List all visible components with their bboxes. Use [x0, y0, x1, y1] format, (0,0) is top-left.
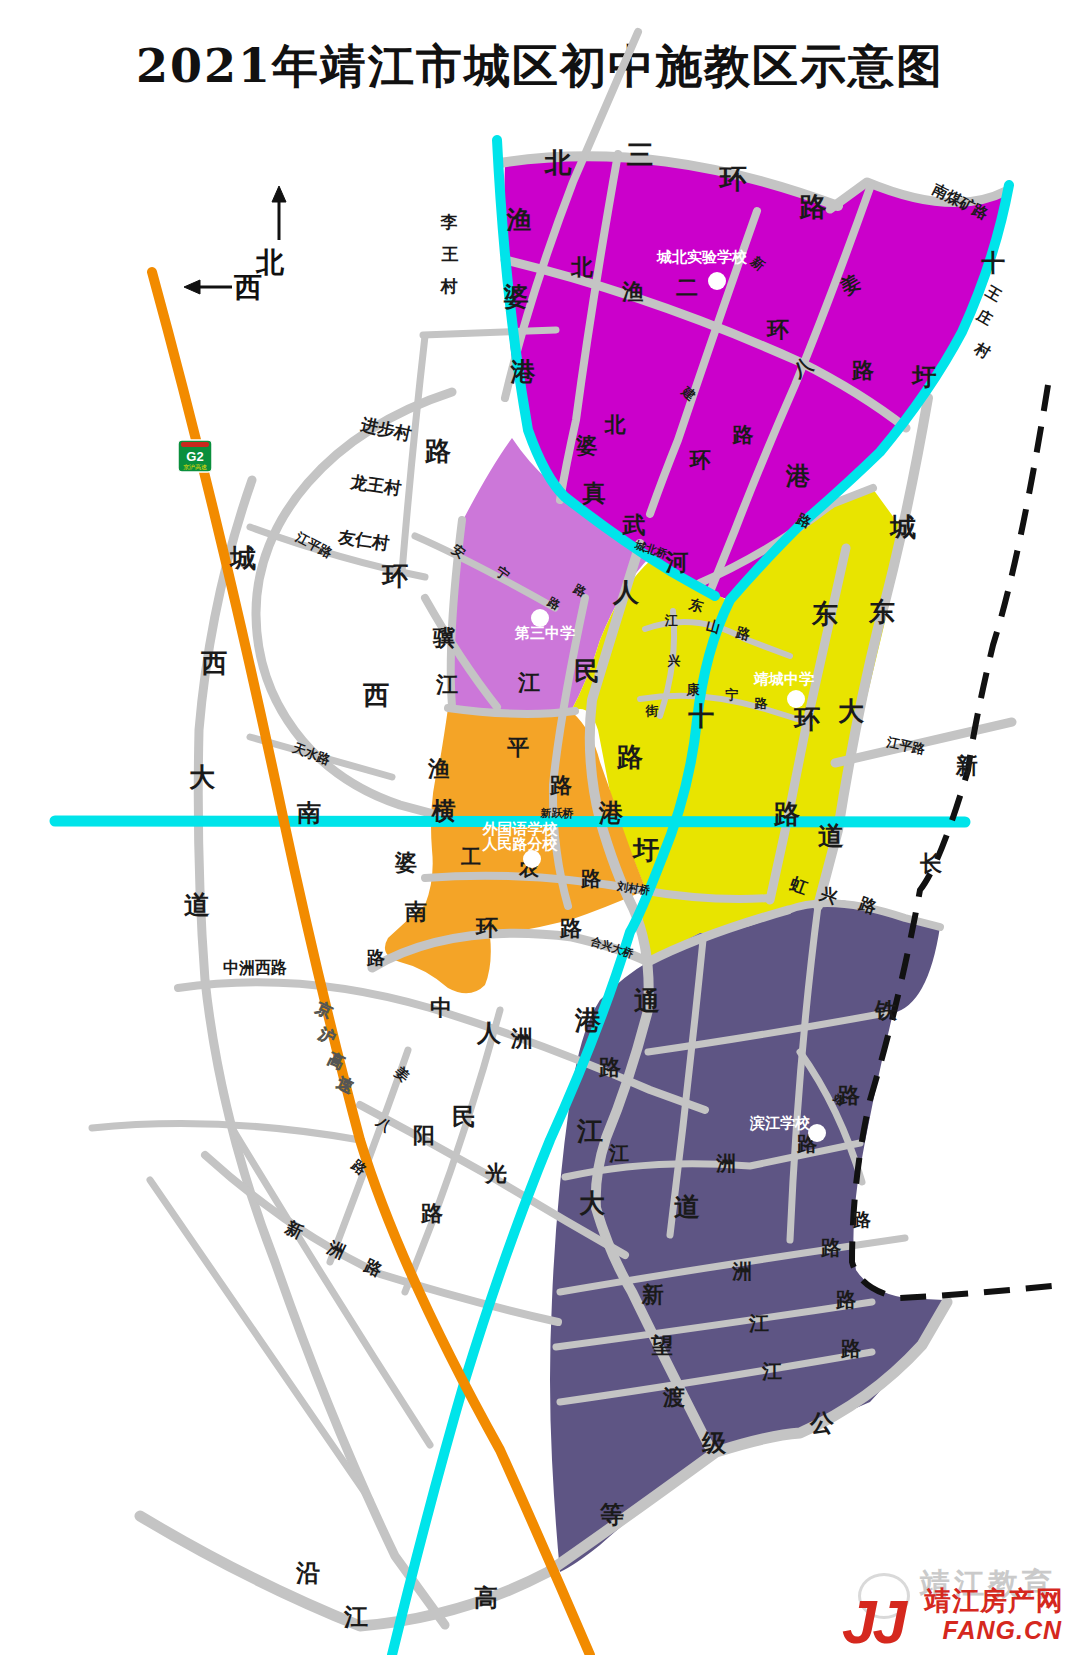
map-label: 光: [484, 1161, 507, 1186]
map-label: 真: [582, 480, 606, 506]
map-label: 大: [838, 696, 865, 726]
map-label: 路: [732, 423, 754, 446]
map-label: 新: [641, 1282, 664, 1307]
map-label: 城: [229, 543, 256, 573]
compass: 北 西: [184, 186, 286, 303]
map-label: 洲: [731, 1260, 752, 1282]
map-label: 铁: [874, 998, 898, 1023]
north-arrow-head: [272, 186, 286, 202]
map-label: 王: [441, 245, 459, 264]
map-label: 横: [431, 797, 456, 824]
map-label: 环: [766, 317, 789, 342]
map-label: 圩: [911, 363, 937, 390]
map-label: 康: [686, 682, 701, 697]
map-label: 友仁村: [336, 527, 390, 553]
map-label: 大: [189, 762, 216, 792]
map-label: 西: [363, 680, 389, 710]
map-label: 婆: [576, 434, 598, 457]
map-label: 路: [754, 696, 769, 711]
map-label: 南: [296, 799, 321, 826]
map-label: 环: [475, 915, 498, 940]
district-map: 北 西 G2 京沪高速 北三环路南煤矿路李王村渔婆港十圩港王庄村新建北二环路姜八…: [0, 0, 1080, 1655]
map-label: 渡: [662, 1385, 685, 1410]
map-label: 渔: [621, 279, 644, 304]
map-label: 江: [748, 1312, 769, 1334]
map-label: 民: [452, 1103, 476, 1130]
map-label: 十: [688, 701, 714, 731]
map-label: 环: [793, 704, 820, 734]
school-marker-dot: [708, 272, 726, 290]
map-label: 路: [616, 742, 643, 772]
map-label: 东: [811, 599, 838, 629]
map-label: 骥: [432, 625, 455, 650]
map-label: 婆: [394, 850, 417, 875]
map-label: 龙王村: [348, 472, 402, 498]
map-label: 路: [835, 1289, 857, 1311]
school-name-label: 城北实验学校: [656, 248, 748, 265]
map-label: 宁: [725, 687, 739, 702]
map-label: 等: [599, 1501, 624, 1528]
map-label: 渔: [506, 205, 532, 233]
school-name-label: 靖城中学: [753, 670, 814, 687]
map-label: 道: [818, 821, 844, 851]
map-label: 路: [840, 1338, 862, 1360]
g2-badge-code: G2: [186, 449, 203, 464]
map-label: 江: [608, 1142, 629, 1164]
map-label: 武: [622, 512, 646, 538]
map-label: 北: [604, 413, 627, 436]
map-label: 李: [440, 213, 458, 232]
west-label: 西: [233, 272, 262, 303]
map-label: 南: [404, 899, 427, 924]
map-label: 港: [574, 1005, 602, 1035]
school-name-label: 滨江学校: [749, 1114, 811, 1132]
g2-highway-badge: G2 京沪高速: [178, 440, 212, 472]
map-label: 十: [981, 249, 1005, 276]
map-label: 港: [510, 357, 536, 385]
map-label: 路: [580, 868, 602, 890]
map-label: 洲: [715, 1152, 736, 1174]
map-label: 级: [701, 1429, 727, 1456]
school-marker-dot: [523, 850, 541, 868]
map-label: 二: [676, 275, 698, 300]
map-label: 江: [665, 613, 679, 628]
map-label: 天水路: [290, 740, 334, 768]
map-label: 洲: [510, 1026, 533, 1051]
school-name-label: 第三中学: [514, 624, 575, 641]
map-label: 江: [761, 1360, 782, 1382]
map-label: 渔: [427, 756, 450, 781]
map-label: 人: [476, 1019, 502, 1046]
school-marker-dot: [808, 1124, 826, 1142]
map-label: 路: [366, 948, 385, 968]
map-label: 长: [919, 851, 943, 876]
map-label: 路: [424, 436, 451, 466]
map-label: 江: [517, 670, 540, 695]
map-label: 进步村: [358, 415, 413, 444]
map-label: 路: [420, 1201, 443, 1226]
map-label: 兴: [667, 653, 681, 668]
map-stage: 2021年靖江市城区初中施教区示意图: [0, 0, 1080, 1655]
map-label: 环: [719, 164, 747, 194]
map-label: 东: [868, 597, 895, 627]
map-label: 公: [809, 1409, 835, 1436]
map-label: 路: [598, 1055, 621, 1080]
map-label: 环: [381, 561, 408, 591]
map-label: 民: [574, 656, 600, 686]
map-label: 村: [971, 339, 993, 362]
map-label: 道: [674, 1192, 700, 1222]
map-label: 港: [598, 799, 624, 826]
map-label: 三: [627, 140, 654, 170]
map-label: 望: [650, 1333, 673, 1358]
map-label: 大: [579, 1188, 606, 1218]
map-label: 街: [645, 703, 659, 718]
map-label: 路: [549, 773, 572, 798]
map-label: 江: [435, 672, 458, 697]
map-label: 城: [889, 512, 916, 542]
map-label: 河: [665, 549, 689, 575]
g2-badge-name: 京沪高速: [183, 463, 207, 470]
map-label: 工: [460, 846, 481, 868]
map-label: 圩: [631, 835, 659, 865]
map-label: 路: [851, 358, 874, 383]
map-label: 中: [430, 995, 452, 1020]
jj-logo: JJ: [842, 1591, 903, 1653]
map-label: 中洲西路: [223, 958, 287, 976]
map-label: 道: [184, 890, 210, 920]
map-label: 江平路: [293, 529, 335, 561]
map-label: 阳: [413, 1123, 435, 1148]
west-arrow-head: [184, 280, 200, 294]
school-name-label-line2: 人民路分校: [482, 835, 559, 852]
map-label: 新: [955, 753, 978, 778]
map-label: 通: [633, 986, 660, 1016]
map-label: 村: [440, 277, 458, 296]
map-label: 速: [334, 1074, 357, 1097]
map-label: 新跃桥: [540, 807, 575, 819]
map-label: 高: [474, 1584, 498, 1611]
map-label: 婆: [503, 282, 529, 310]
watermark-site-url: FANG.CN: [943, 1616, 1063, 1645]
map-label: 江: [576, 1116, 603, 1146]
school-marker-dot: [787, 690, 805, 708]
watermark: 靖江教育 JJ 靖江房产网 FANG.CN: [814, 1557, 1074, 1647]
map-label: 江: [343, 1603, 368, 1630]
map-label: 西: [201, 648, 227, 678]
map-label: 北: [544, 148, 572, 178]
map-label: 路: [820, 1237, 842, 1259]
watermark-site-name: 靖江房产网: [924, 1583, 1064, 1619]
map-label: 路: [559, 916, 582, 941]
map-label: 路: [799, 192, 827, 222]
map-label: 路: [852, 1210, 871, 1230]
map-label: 港: [785, 462, 811, 489]
map-label: 平: [507, 735, 529, 760]
map-label: 北: [570, 255, 594, 280]
map-label: 沿: [295, 1559, 320, 1586]
map-label: 人: [612, 577, 640, 607]
map-label: 路: [773, 799, 800, 829]
map-label: 环: [689, 448, 711, 471]
